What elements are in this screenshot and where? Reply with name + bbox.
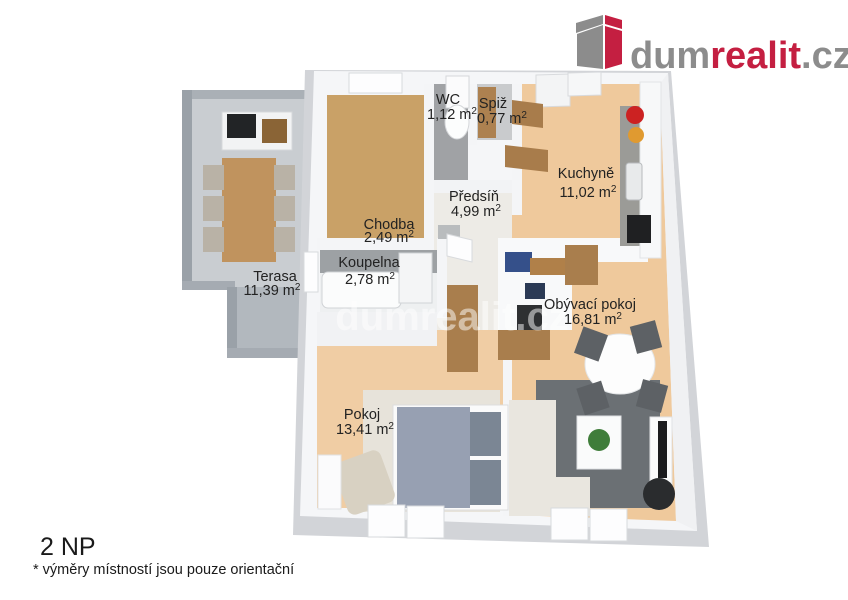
svg-text:* výměry místností jsou pouze: * výměry místností jsou pouze orientační	[33, 562, 294, 578]
svg-text:2,49 m2: 2,49 m2	[364, 229, 414, 246]
svg-text:11,39 m2: 11,39 m2	[244, 282, 301, 299]
svg-text:dumrealit.cz: dumrealit.cz	[630, 35, 848, 77]
svg-text:dumrealit.cz: dumrealit.cz	[335, 295, 568, 339]
svg-text:11,02 m2: 11,02 m2	[560, 184, 617, 201]
svg-text:13,41 m2: 13,41 m2	[336, 421, 394, 438]
svg-text:0,77 m2: 0,77 m2	[477, 110, 527, 127]
svg-text:Obývací pokoj: Obývací pokoj	[544, 297, 636, 313]
svg-text:Pokoj: Pokoj	[344, 407, 380, 423]
svg-text:16,81 m2: 16,81 m2	[564, 311, 622, 328]
svg-text:2,78 m2: 2,78 m2	[345, 271, 395, 288]
svg-text:4,99 m2: 4,99 m2	[451, 203, 501, 220]
svg-text:Předsíň: Předsíň	[449, 189, 499, 205]
svg-text:Koupelna: Koupelna	[338, 255, 400, 271]
svg-text:1,12 m2: 1,12 m2	[427, 106, 477, 123]
svg-text:WC: WC	[436, 92, 460, 108]
svg-text:Spiž: Spiž	[479, 96, 507, 112]
svg-text:2 NP: 2 NP	[40, 533, 96, 561]
svg-text:Kuchyně: Kuchyně	[558, 166, 614, 182]
